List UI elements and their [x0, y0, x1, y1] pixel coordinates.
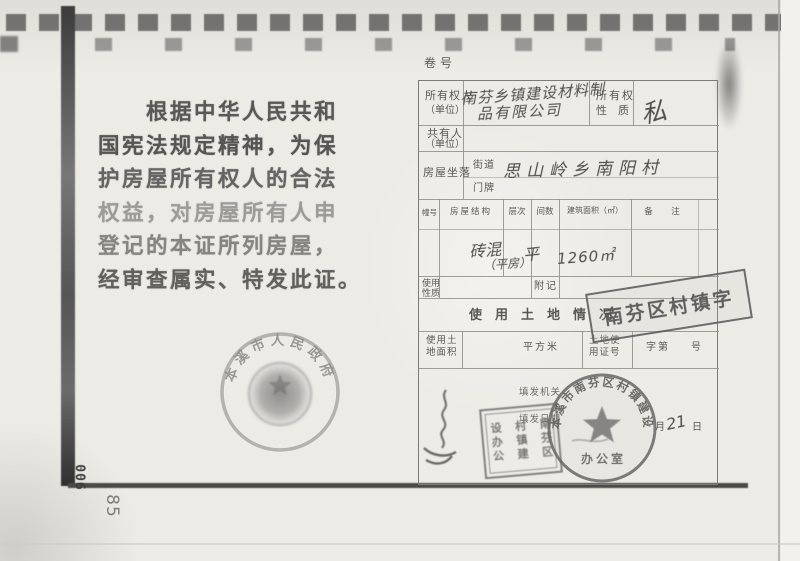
grid-line — [419, 331, 719, 332]
plate-label: 门牌 — [473, 183, 495, 195]
location-label: 房屋坐落 — [423, 167, 471, 180]
certificate-preamble: 根据中华人民共和 国宪法规定精神，为保 护房屋所有权人的合法 权益，对房屋所有人… — [98, 96, 414, 297]
nature-value-handwriting: 私 — [638, 91, 669, 131]
scan-shading-top — [0, 0, 800, 70]
building-col-header: 房屋结构 — [439, 206, 503, 216]
land-cert-label2: 用证号 — [589, 348, 621, 359]
page-right-margin — [781, 0, 800, 561]
preamble-line: 登记的本证所列房屋， — [98, 230, 414, 264]
paper-bottom-edge — [0, 543, 800, 545]
building-col-header: 备 注 — [631, 206, 698, 216]
usage-label2: 性质 — [422, 288, 440, 299]
serial-label: 卷号 — [424, 56, 456, 70]
grid-line — [419, 151, 719, 152]
page-edge-line — [778, 0, 780, 561]
location-value-handwriting: 思山岭乡南阳村 — [503, 153, 665, 182]
street-label: 街道 — [473, 160, 495, 172]
coowner-unit-label: （单位） — [425, 139, 465, 151]
binding-perforation-marks-row1 — [6, 14, 794, 31]
preamble-line: 权益，对房屋所有人申 — [98, 197, 414, 231]
owner-value-handwriting: 品有限公司 — [477, 99, 563, 124]
land-area-label2: 地面积 — [426, 348, 458, 359]
signature-scribble — [416, 386, 470, 476]
building-col-header: 层次 — [503, 206, 531, 216]
ownership-nature-label2: 性 质 — [596, 105, 629, 118]
page-number: 85 — [102, 494, 122, 518]
preamble-line: 国宪法规定精神，为保 — [98, 130, 414, 164]
square-stamp-column: 设办公 — [487, 422, 507, 465]
preamble-line: 护房屋所有权人的合法 — [98, 163, 414, 197]
grid-line — [419, 229, 719, 230]
grid-line — [419, 199, 719, 200]
land-area-label: 使用土 — [426, 336, 458, 347]
scan-smudge-right — [716, 40, 742, 128]
building-col-header: 间数 — [531, 206, 559, 216]
hao-label: 号 — [691, 342, 701, 354]
certificate-frame-left — [61, 6, 75, 486]
square-stamp-column: 村镇建 — [511, 419, 531, 462]
day-value-handwriting: 21 — [664, 411, 688, 434]
round-stamp-bottom-text: 办 公 室 — [581, 451, 623, 466]
owner-unit-label: （单位） — [425, 105, 465, 117]
archive-number: 006 — [72, 464, 87, 490]
national-emblem-icon — [247, 361, 313, 427]
binding-perforation-marks-row2 — [95, 38, 735, 51]
round-office-stamp: 本溪市南芬区村镇建设 办 公 室 — [542, 371, 662, 489]
grid-line — [419, 368, 719, 369]
day-label: 日 — [692, 422, 702, 434]
scan-artifact-left — [0, 36, 18, 52]
scanned-certificate-page: { "page": { "number": "85", "archive_cod… — [0, 0, 800, 561]
preamble-line: 根据中华人民共和 — [98, 96, 414, 130]
grid-line — [419, 125, 719, 126]
square-meter-label: 平方米 — [523, 342, 559, 354]
grid-line — [582, 331, 583, 368]
rect-stamp-text: 南芬区村镇字 — [602, 282, 737, 329]
grid-line — [462, 331, 463, 368]
zi-label: 字第 — [646, 342, 670, 354]
government-seal: 本溪市人民政府 — [212, 328, 350, 458]
grid-line — [419, 276, 719, 277]
area-value-handwriting: 1260㎡ — [556, 244, 616, 269]
building-col-header: 建筑面积（㎡） — [559, 206, 631, 216]
addendum-label: 附记 — [534, 281, 558, 293]
preamble-line: 经审查属实、特发此证。 — [98, 264, 414, 298]
grid-line — [698, 199, 699, 276]
floors-value-handwriting: 平 — [522, 240, 540, 266]
ownership-nature-label: 所有权 — [596, 90, 635, 103]
building-col-header: 幢号 — [420, 208, 439, 217]
